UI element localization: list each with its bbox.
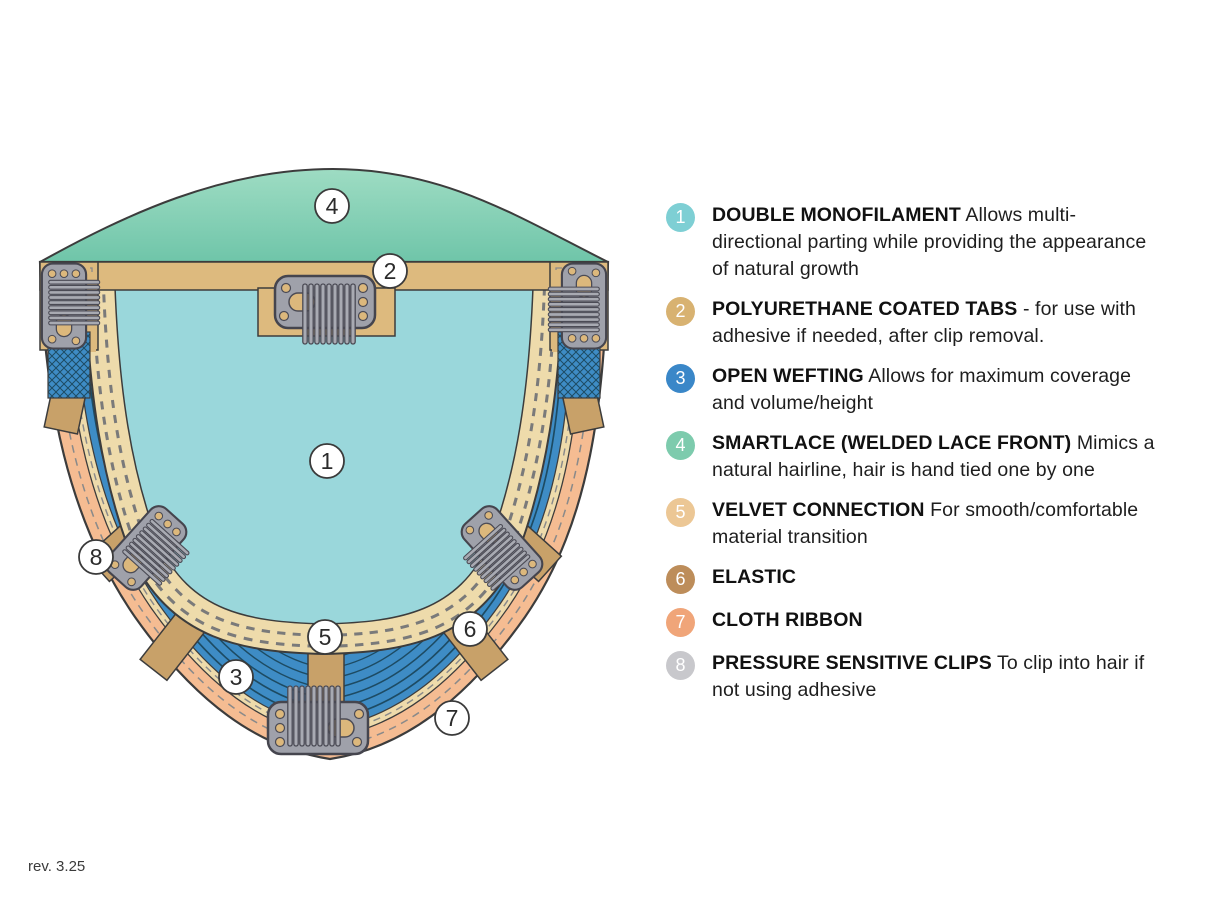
- legend-text-3: OPEN WEFTING Allows for maximum coverage…: [712, 363, 1166, 417]
- callout-6: 6: [453, 612, 487, 646]
- legend-item-pressure-clips: 8 PRESSURE SENSITIVE CLIPS To clip into …: [666, 650, 1166, 704]
- legend-badge-4: 4: [666, 431, 695, 460]
- legend-item-cloth-ribbon: 7 CLOTH RIBBON: [666, 607, 1166, 637]
- callout-5: 5: [308, 620, 342, 654]
- callout-1: 1: [310, 444, 344, 478]
- revision-label: rev. 3.25: [28, 858, 85, 875]
- callout-3: 3: [219, 660, 253, 694]
- legend-badge-7: 7: [666, 608, 695, 637]
- legend-badge-3: 3: [666, 364, 695, 393]
- legend-badge-2: 2: [666, 297, 695, 326]
- svg-text:2: 2: [384, 258, 397, 284]
- legend-item-polyurethane-tabs: 2 POLYURETHANE COATED TABS - for use wit…: [666, 296, 1166, 350]
- svg-text:7: 7: [446, 705, 459, 731]
- legend-item-elastic: 6 ELASTIC: [666, 564, 1166, 594]
- legend-badge-8: 8: [666, 651, 695, 680]
- cap-construction-diagram: 4 2 1 8 5 6 3 7: [0, 0, 650, 912]
- callout-4: 4: [315, 189, 349, 223]
- legend-text-8: PRESSURE SENSITIVE CLIPS To clip into ha…: [712, 650, 1166, 704]
- legend-item-open-wefting: 3 OPEN WEFTING Allows for maximum covera…: [666, 363, 1166, 417]
- svg-text:3: 3: [230, 664, 243, 690]
- legend-badge-6: 6: [666, 565, 695, 594]
- legend-text-1: DOUBLE MONOFILAMENT Allows multi-directi…: [712, 202, 1166, 283]
- legend-badge-5: 5: [666, 498, 695, 527]
- page: 4 2 1 8 5 6 3 7 1: [0, 0, 1214, 912]
- legend-text-2: POLYURETHANE COATED TABS - for use with …: [712, 296, 1166, 350]
- legend-item-smartlace: 4 SMARTLACE (WELDED LACE FRONT) Mimics a…: [666, 430, 1166, 484]
- callout-8: 8: [79, 540, 113, 574]
- svg-text:4: 4: [326, 193, 339, 219]
- svg-text:6: 6: [464, 616, 477, 642]
- legend-text-7: CLOTH RIBBON: [712, 607, 863, 634]
- legend-item-double-monofilament: 1 DOUBLE MONOFILAMENT Allows multi-direc…: [666, 202, 1166, 283]
- legend-item-velvet-connection: 5 VELVET CONNECTION For smooth/comfortab…: [666, 497, 1166, 551]
- svg-text:5: 5: [319, 624, 332, 650]
- legend-badge-1: 1: [666, 203, 695, 232]
- legend-text-5: VELVET CONNECTION For smooth/comfortable…: [712, 497, 1166, 551]
- front-tab: [258, 276, 395, 344]
- legend: 1 DOUBLE MONOFILAMENT Allows multi-direc…: [666, 202, 1166, 704]
- callout-2: 2: [373, 254, 407, 288]
- svg-text:8: 8: [90, 544, 103, 570]
- callout-7: 7: [435, 701, 469, 735]
- svg-text:1: 1: [321, 448, 334, 474]
- legend-text-6: ELASTIC: [712, 564, 796, 591]
- legend-text-4: SMARTLACE (WELDED LACE FRONT) Mimics a n…: [712, 430, 1166, 484]
